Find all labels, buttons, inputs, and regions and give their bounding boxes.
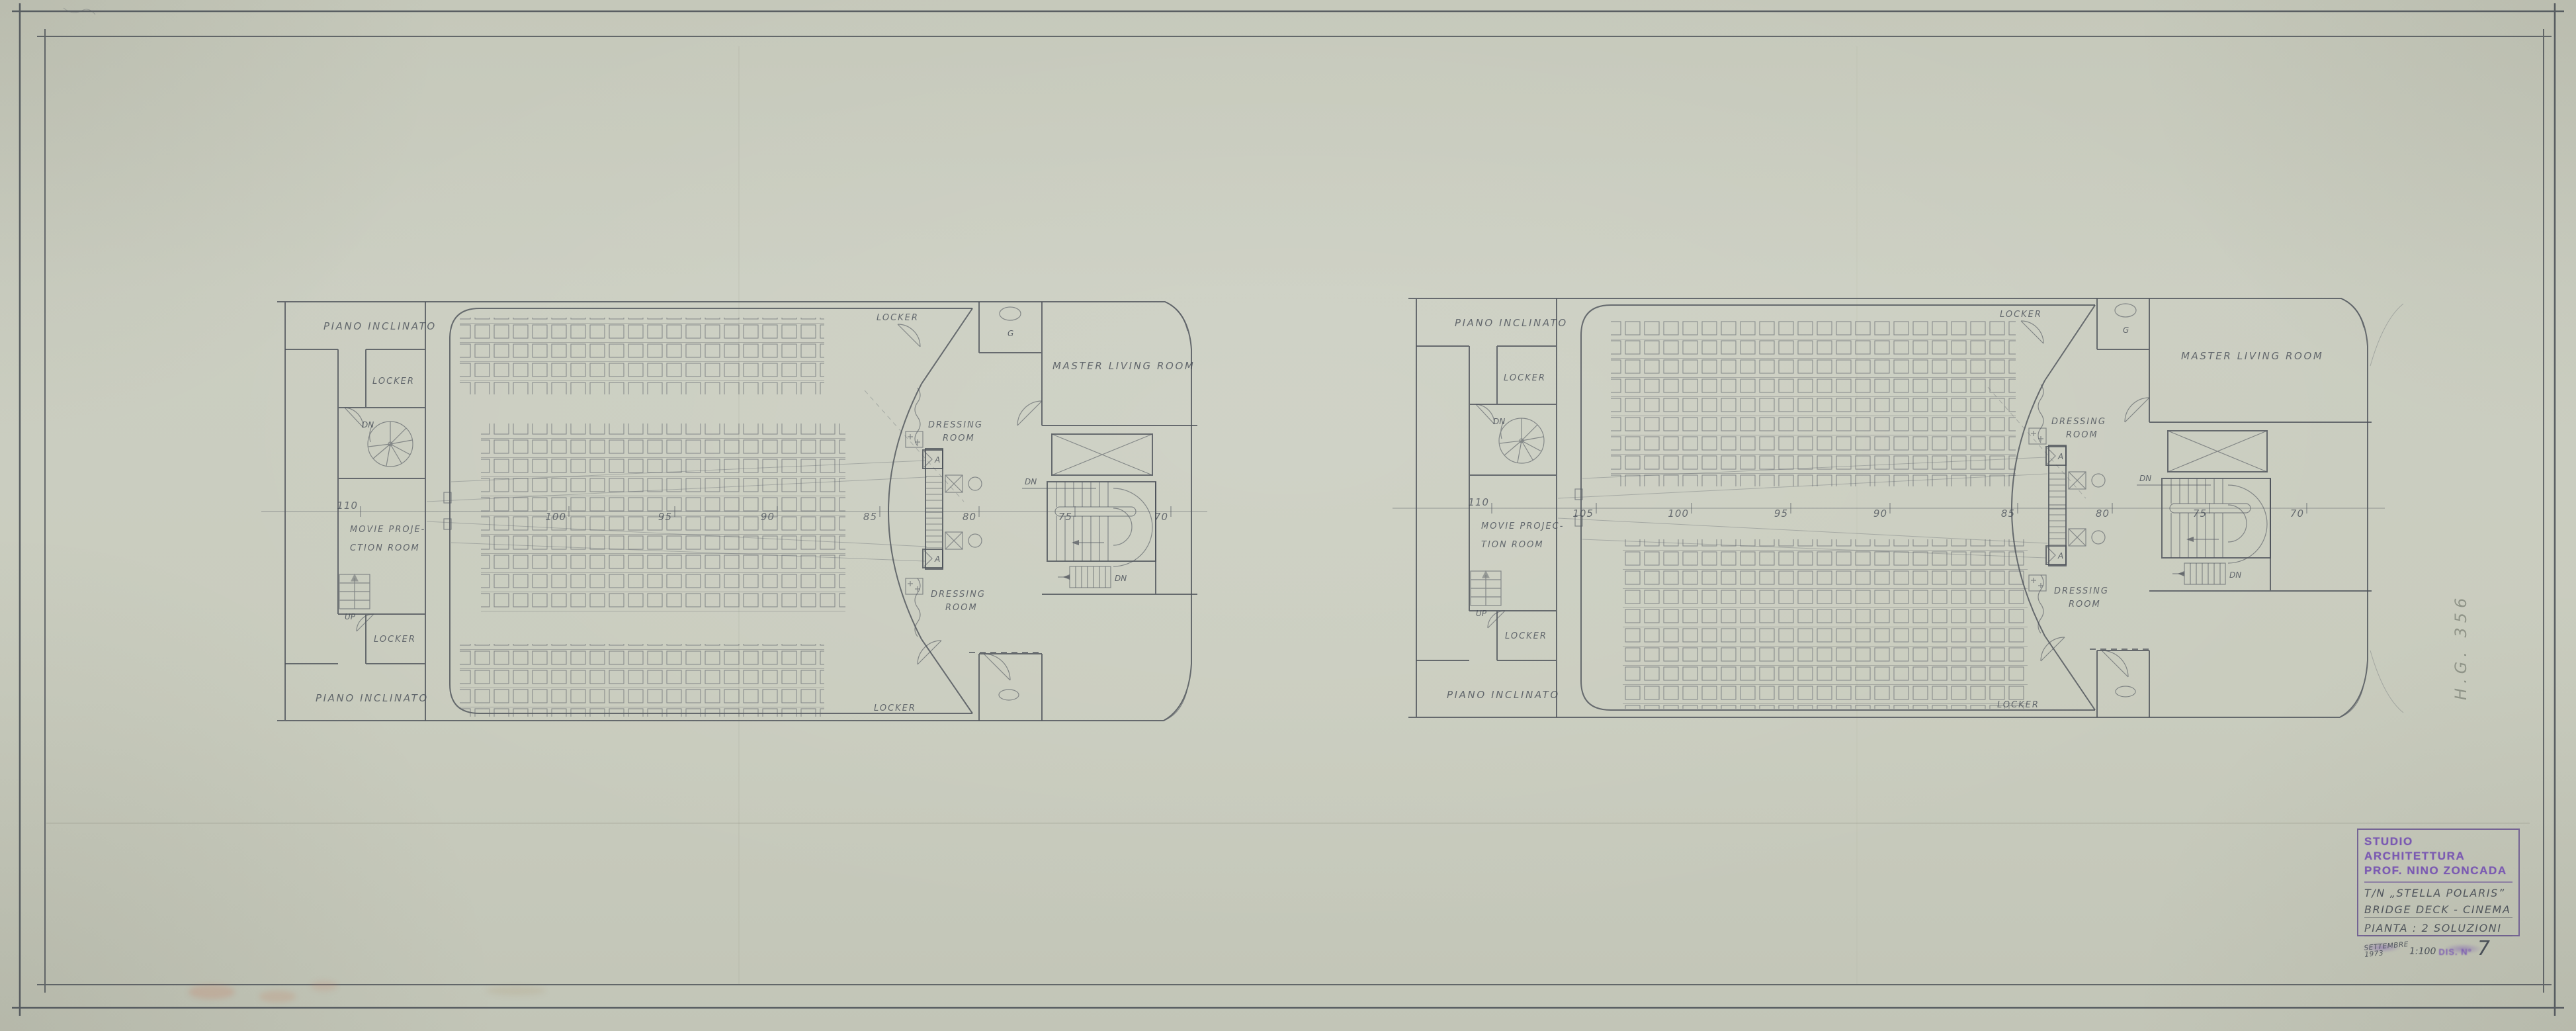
- label-locker-lower: LOCKER: [374, 635, 416, 645]
- lower-stair: [2172, 563, 2225, 584]
- lower-stair: [1058, 566, 1111, 588]
- svg-text:80: 80: [2096, 508, 2110, 519]
- stain-mark: [486, 986, 546, 995]
- fold-line-vertical: [1856, 46, 1858, 985]
- vent-symbols: [2029, 428, 2105, 591]
- frame-numbers: 110 105 100 95 90 85 80 75 70: [1468, 496, 2304, 519]
- title-block: STUDIO ARCHITETTURA PROF. NINO ZONCADA T…: [2357, 829, 2520, 936]
- label-dressing-bottom-1: DRESSING: [931, 590, 986, 600]
- fold-line-horizontal: [46, 823, 2530, 824]
- label-dressing-top-2: ROOM: [2066, 430, 2098, 440]
- label-dressing-bottom-2: ROOM: [2069, 600, 2101, 609]
- project-title: T/N „STELLA POLARIS”: [2364, 887, 2512, 899]
- label-piano-inclinato-top: PIANO INCLINATO: [1455, 317, 1568, 329]
- label-movie-2: CTION ROOM: [350, 543, 420, 553]
- stain-mark: [189, 985, 235, 999]
- centerline: [1393, 503, 2385, 514]
- main-stair: [1022, 482, 1156, 566]
- svg-text:70: 70: [1154, 511, 1168, 523]
- label-piano-inclinato-bottom: PIANO INCLINATO: [1447, 689, 1560, 701]
- svg-text:90: 90: [1873, 508, 1887, 519]
- speaker-a-top: A: [2057, 452, 2063, 461]
- plan-type: PIANTA : 2 SOLUZIONI: [2364, 922, 2512, 936]
- drawing-scale: 1:100: [2409, 946, 2436, 957]
- label-dressing-bottom-2: ROOM: [945, 603, 978, 613]
- label-locker-corridor-top: LOCKER: [877, 313, 919, 323]
- label-dressing-bottom-1: DRESSING: [2054, 586, 2109, 596]
- label-piano-inclinato-top: PIANO INCLINATO: [323, 320, 437, 332]
- stage: [888, 308, 972, 713]
- drawing-date: SETTEMBRE 1973: [2364, 942, 2408, 960]
- crossed-box: [1052, 434, 1152, 475]
- plan-left: DN UP: [281, 283, 1201, 746]
- fold-line-vertical: [738, 46, 740, 985]
- label-movie-1: MOVIE PROJE-: [350, 525, 425, 535]
- svg-text:90: 90: [761, 511, 775, 523]
- svg-text:95: 95: [1774, 508, 1788, 519]
- speaker-a-bottom: A: [2057, 551, 2063, 560]
- up-stair-label: UP: [345, 612, 356, 621]
- label-dressing-top-2: ROOM: [943, 433, 975, 443]
- crossed-box: [2168, 431, 2267, 472]
- label-piano-inclinato-bottom: PIANO INCLINATO: [316, 692, 429, 704]
- up-stair-label: UP: [1476, 609, 1487, 618]
- label-locker-lower: LOCKER: [1505, 631, 1547, 641]
- svg-text:75: 75: [1058, 511, 1072, 523]
- up-stair: [1471, 571, 1501, 605]
- speaker-a-top: A: [934, 455, 940, 465]
- label-locker-upper: LOCKER: [372, 377, 415, 386]
- label-wc: G: [2123, 326, 2129, 335]
- spiral-stair: [368, 422, 413, 467]
- main-stair: [2137, 478, 2270, 563]
- stain-mark: [311, 981, 337, 991]
- label-wc: G: [1008, 329, 1013, 338]
- studio-prof: PROF. NINO ZONCADA: [2364, 864, 2512, 878]
- studio-stamp: STUDIO ARCHITETTURA PROF. NINO ZONCADA: [2364, 834, 2512, 883]
- studio-name: STUDIO ARCHITETTURA: [2364, 834, 2512, 864]
- label-dressing-top-1: DRESSING: [928, 420, 983, 430]
- plan-right: DN UP: [1412, 280, 2405, 743]
- drawing-subject: BRIDGE DECK - CINEMA: [2364, 903, 2512, 918]
- speaker-a-bottom: A: [934, 555, 940, 564]
- up-stair: [339, 574, 370, 609]
- blueprint-sheet: DN UP: [0, 0, 2576, 1031]
- spiral-stair: [1499, 418, 1544, 463]
- svg-text:75: 75: [2193, 508, 2207, 519]
- svg-text:85: 85: [863, 511, 877, 523]
- svg-text:110: 110: [1468, 496, 1489, 508]
- main-stair-dn-label: DN: [2139, 474, 2151, 483]
- main-stair-dn-label: DN: [1025, 477, 1037, 486]
- archive-note: H.G. 356: [2452, 561, 2470, 700]
- label-dressing-top-1: DRESSING: [2051, 417, 2106, 427]
- lower-stair-dn-label: DN: [1115, 574, 1127, 583]
- label-locker-corridor-bottom: LOCKER: [1997, 700, 2039, 710]
- svg-text:95: 95: [658, 511, 672, 523]
- drawing-number-label: DIS. N°: [2438, 947, 2471, 957]
- spiral-stair-dn-label: DN: [1493, 417, 1505, 426]
- svg-text:70: 70: [2290, 508, 2304, 519]
- svg-text:110: 110: [337, 500, 358, 512]
- seat-banks: [460, 318, 845, 717]
- svg-text:85: 85: [2001, 508, 2015, 519]
- label-locker-corridor-top: LOCKER: [2000, 310, 2042, 320]
- drawing-number: 7: [2477, 941, 2490, 957]
- lower-stair-dn-label: DN: [2229, 570, 2241, 580]
- label-movie-2: TION ROOM: [1481, 540, 1544, 550]
- label-locker-upper: LOCKER: [1504, 373, 1546, 383]
- spiral-stair-dn-label: DN: [362, 420, 374, 429]
- svg-text:100: 100: [545, 511, 566, 523]
- label-master-living-room: MASTER LIVING ROOM: [1052, 360, 1195, 372]
- stain-mark: [259, 991, 296, 1003]
- label-movie-1: MOVIE PROJEC-: [1481, 521, 1564, 531]
- label-locker-corridor-bottom: LOCKER: [874, 703, 916, 713]
- svg-text:80: 80: [963, 511, 976, 523]
- svg-text:105: 105: [1572, 508, 1594, 519]
- svg-text:100: 100: [1668, 508, 1689, 519]
- label-master-living-room: MASTER LIVING ROOM: [2181, 350, 2323, 362]
- title-block-footer: SETTEMBRE 1973 1:100 DIS. N° 7: [2364, 941, 2512, 957]
